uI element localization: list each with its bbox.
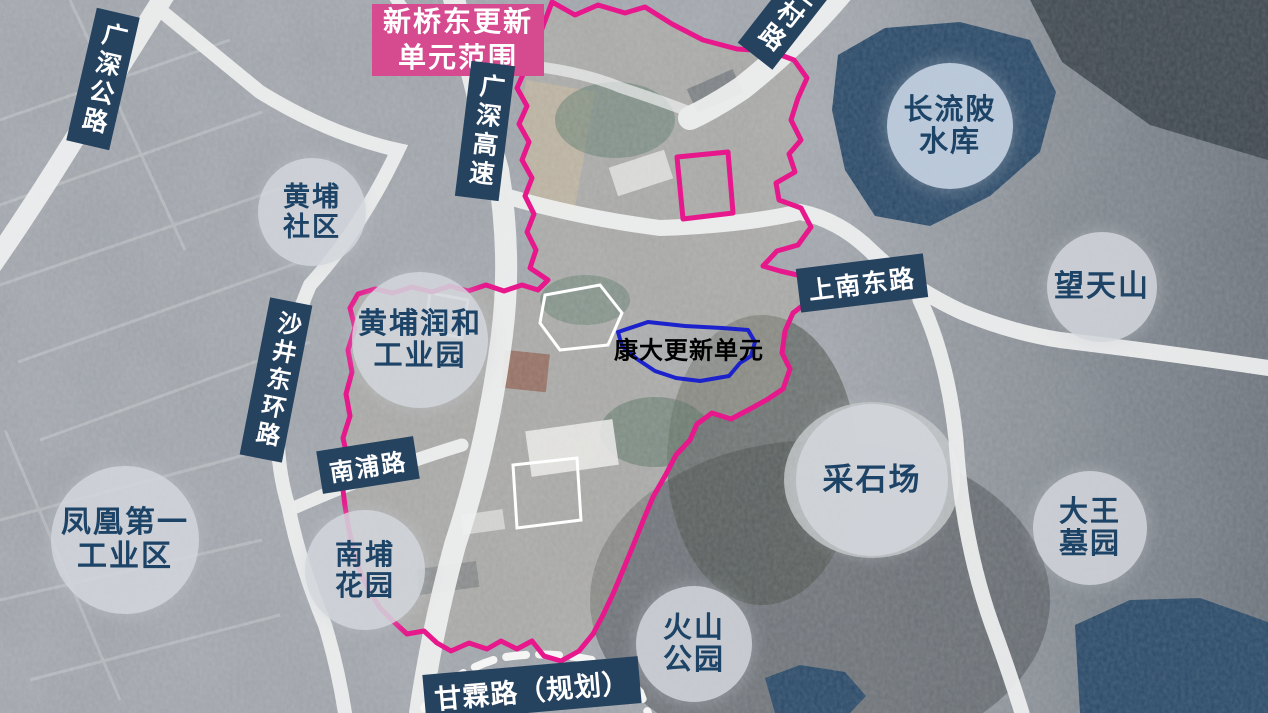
area-label-fenghuang-diyi: 凤凰第一 工业区	[51, 466, 199, 614]
title-line-1: 新桥东更新	[383, 4, 533, 40]
road-label-guangshen-gaosu: 广深高速	[455, 61, 515, 201]
area-label-changliupo-shuiku: 长流陂 水库	[887, 63, 1013, 189]
road-label-nanpu-lu: 南浦路	[316, 436, 420, 494]
area-label-nanpu-huayuan: 南埔 花园	[305, 510, 425, 630]
road-label-ganlin-lu: 甘霖路（规划）	[422, 656, 641, 713]
area-label-huoshan-gongyuan: 火山 公园	[636, 586, 752, 702]
kangda-unit-label: 康大更新单元	[614, 331, 764, 366]
road-label-guangshen-gonglu: 广深公路	[66, 8, 139, 150]
labels-layer: 新桥东更新 单元范围 黄埔 社区 黄埔润和 工业园 凤凰第一 工业区 南埔 花园…	[0, 0, 1268, 713]
area-label-huangpu-runhe: 黄埔润和 工业园	[352, 272, 488, 408]
road-label-shajing-donghuanlu: 沙井东环路	[240, 297, 313, 462]
map-canvas: 新桥东更新 单元范围 黄埔 社区 黄埔润和 工业园 凤凰第一 工业区 南埔 花园…	[0, 0, 1268, 713]
renewal-unit-title: 新桥东更新 单元范围	[372, 4, 544, 76]
area-label-caishichang: 采石场	[796, 404, 948, 556]
area-label-huangpu-shequ: 黄埔 社区	[258, 158, 366, 266]
area-label-wangtianshan: 望天山	[1047, 232, 1157, 342]
area-label-dawang-muyuan: 大王 墓园	[1033, 471, 1147, 585]
road-label-zhuangcun-lu: 庄村路	[738, 0, 839, 70]
road-label-shangnan-donglu: 上南东路	[796, 253, 928, 312]
